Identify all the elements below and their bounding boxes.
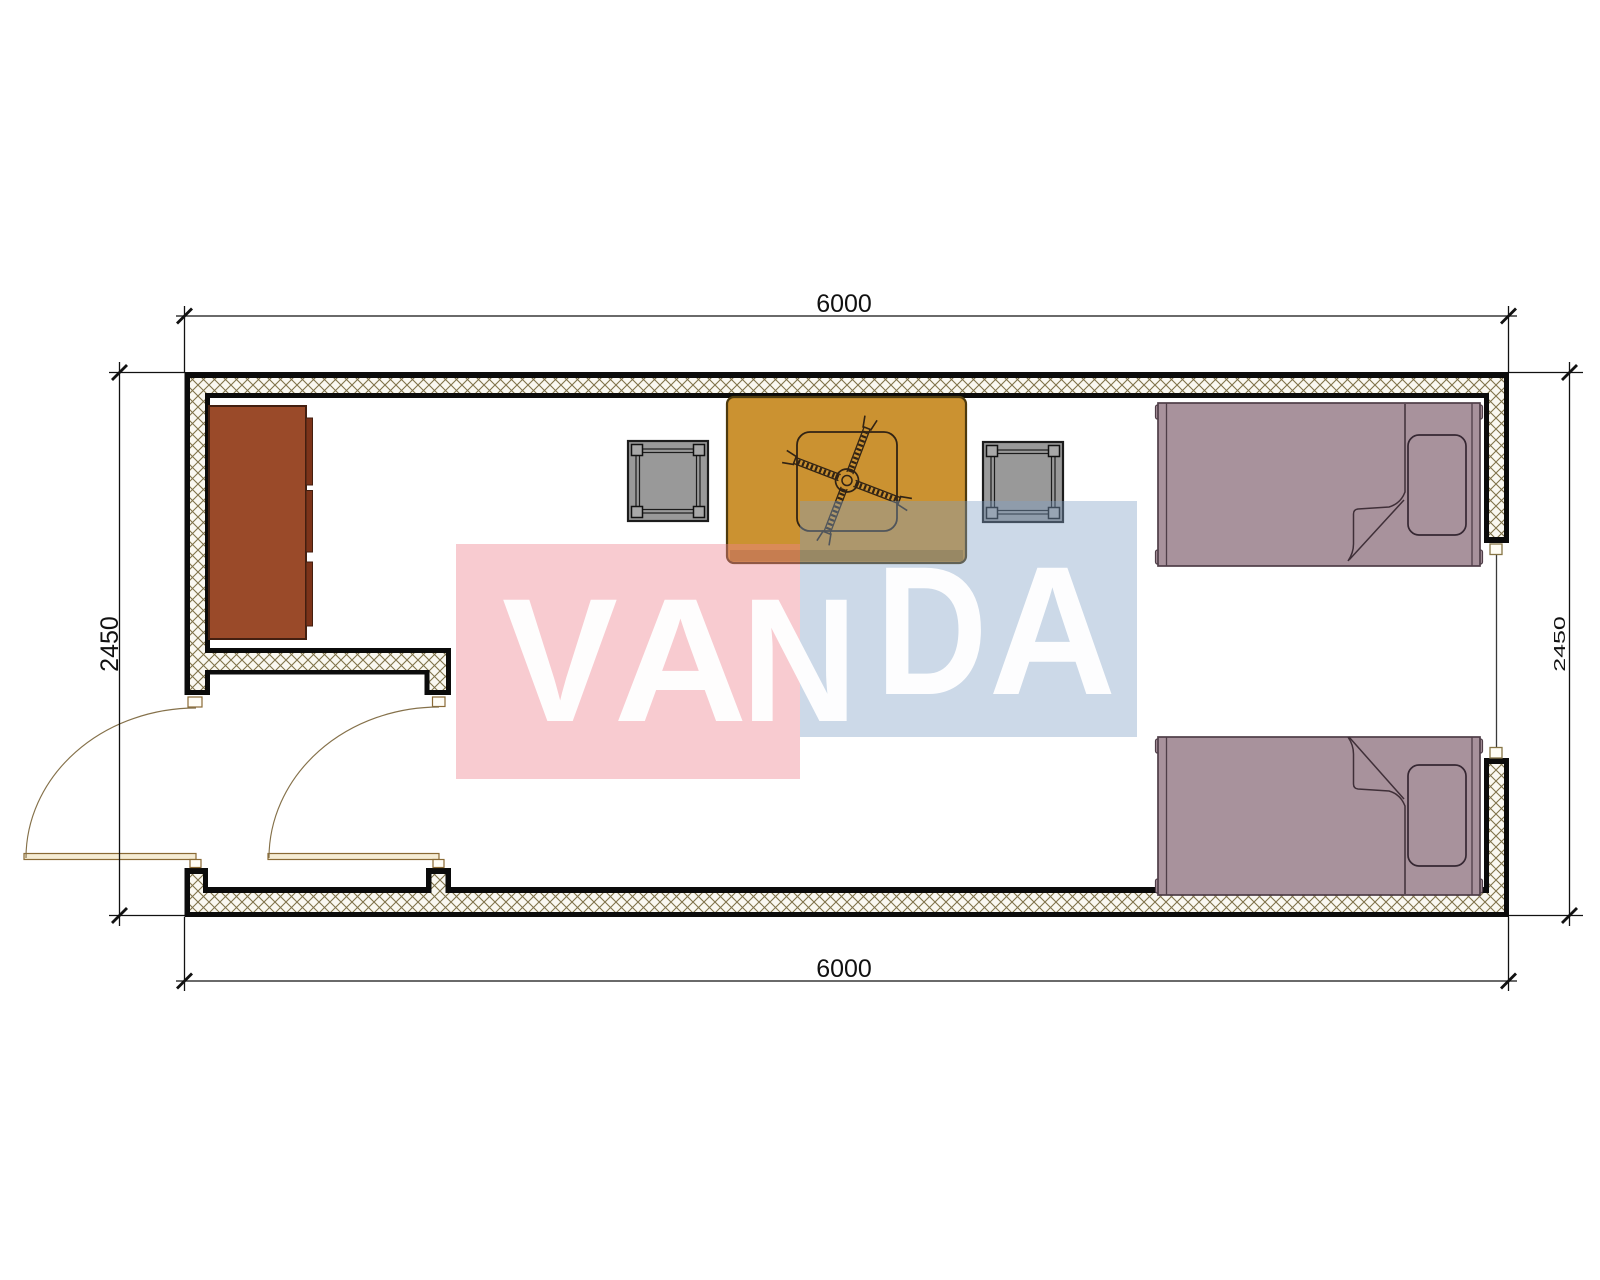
svg-text:2450: 2450 bbox=[96, 616, 124, 672]
svg-text:A: A bbox=[614, 562, 748, 759]
svg-text:6000: 6000 bbox=[816, 290, 872, 318]
svg-text:A: A bbox=[989, 529, 1116, 734]
svg-text:D: D bbox=[876, 527, 988, 732]
svg-text:2450: 2450 bbox=[1552, 616, 1569, 672]
svg-text:V: V bbox=[502, 563, 618, 759]
svg-text:N: N bbox=[741, 561, 857, 758]
svg-text:6000: 6000 bbox=[816, 955, 872, 983]
